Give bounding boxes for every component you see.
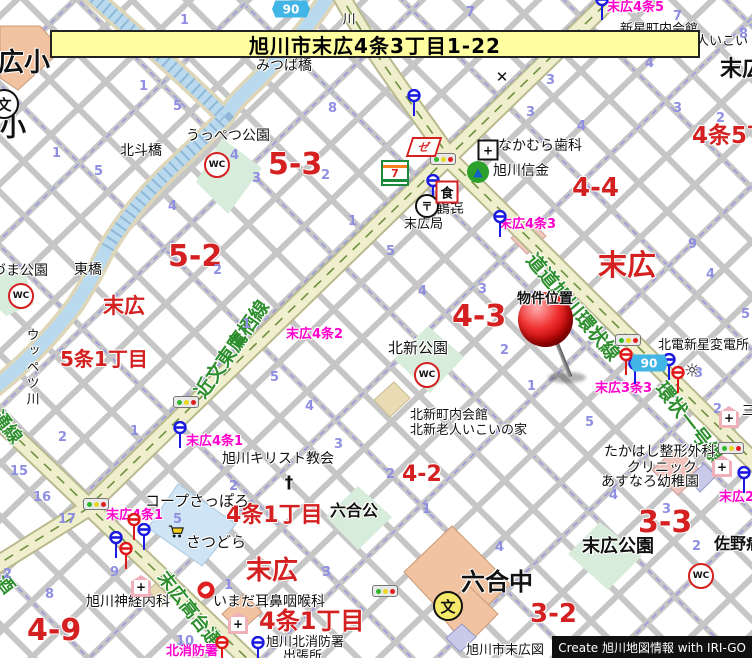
map-credit-bar: Create 旭川地図情報 with IRI-GO — [552, 636, 752, 658]
map-credit-text: Create 旭川地図情報 with IRI-GO — [558, 639, 746, 656]
map-canvas[interactable] — [0, 0, 752, 658]
address-banner: 旭川市末広4条3丁目1-22 — [50, 30, 700, 58]
map-viewport[interactable]: 近文東鷹栖線道道旭川環状線環状一号線末広高台通通線酒ウッペツ川川5-35-25条… — [0, 0, 752, 658]
address-banner-text: 旭川市末広4条3丁目1-22 — [249, 30, 501, 59]
